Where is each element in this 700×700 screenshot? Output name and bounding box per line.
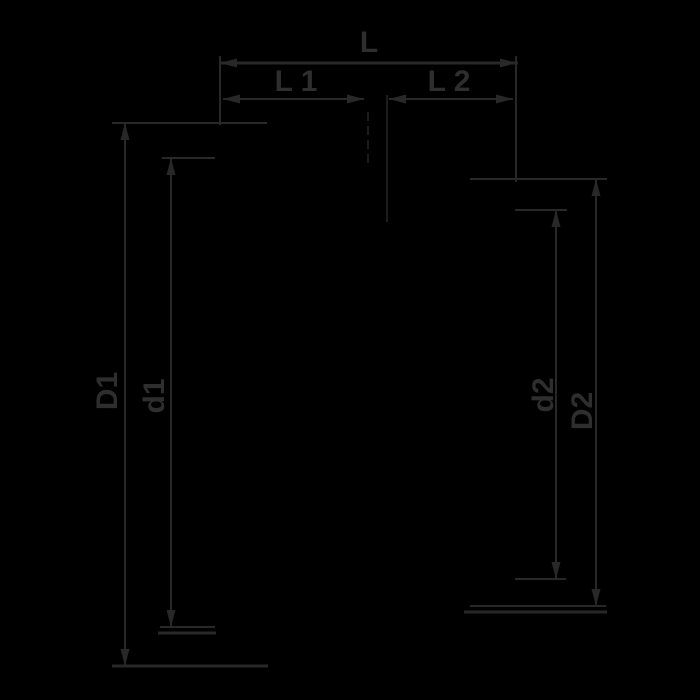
dim-label-L2: L 2 [428, 67, 471, 97]
dim-group-D1 [112, 123, 268, 666]
dimension-drawing [0, 0, 700, 700]
dim-label-L: L [360, 28, 378, 58]
dim-label-D2: D2 [568, 392, 598, 430]
center-step-lines [368, 95, 387, 222]
dim-label-D1: D1 [93, 372, 123, 410]
dim-label-L1: L 1 [275, 67, 318, 97]
dim-label-d2: d2 [529, 377, 559, 412]
dimension-drawing-canvas: L L 1 L 2 D1 d1 d2 D2 [0, 0, 700, 700]
dim-label-d1: d1 [140, 378, 170, 413]
